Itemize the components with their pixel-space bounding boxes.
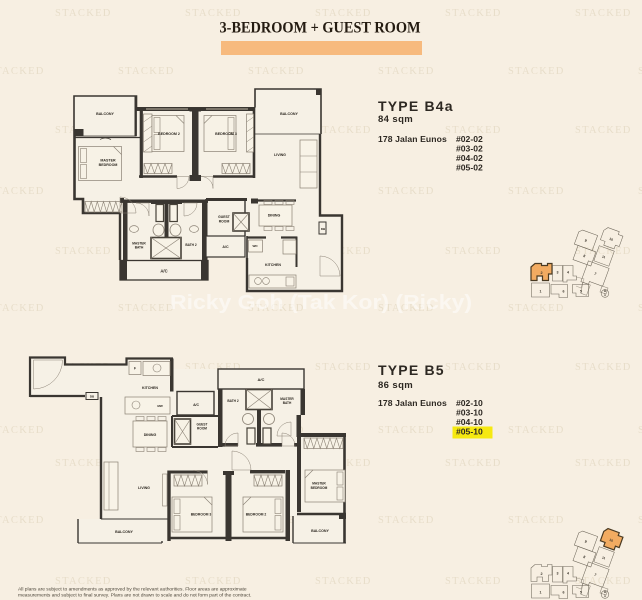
svg-text:STACKED: STACKED: [638, 425, 642, 436]
svg-text:#04-10: #04-10: [456, 417, 483, 427]
svg-text:BEDROOM 3: BEDROOM 3: [215, 132, 237, 136]
svg-text:STACKED: STACKED: [378, 425, 435, 436]
svg-text:TYPE B5: TYPE B5: [378, 362, 445, 378]
svg-text:#04-02: #04-02: [456, 153, 483, 163]
svg-text:BALCONY: BALCONY: [311, 529, 329, 533]
svg-text:ROOM: ROOM: [219, 220, 230, 224]
svg-text:STACKED: STACKED: [508, 186, 565, 197]
svg-text:#05-10: #05-10: [456, 427, 483, 437]
svg-text:STACKED: STACKED: [378, 515, 435, 526]
svg-text:STACKED: STACKED: [445, 458, 502, 469]
svg-text:2: 2: [540, 271, 542, 275]
svg-text:STACKED: STACKED: [508, 303, 565, 314]
svg-text:4: 4: [567, 271, 569, 275]
svg-text:F: F: [134, 367, 136, 371]
svg-text:BATH 2: BATH 2: [185, 243, 197, 247]
svg-text:A/C: A/C: [222, 245, 229, 249]
svg-text:STACKED: STACKED: [0, 186, 45, 197]
svg-text:BALCONY: BALCONY: [280, 112, 298, 116]
svg-text:178 Jalan Eunos: 178 Jalan Eunos: [378, 134, 447, 144]
svg-text:3: 3: [557, 572, 559, 576]
svg-text:STACKED: STACKED: [638, 66, 642, 77]
svg-text:DINING: DINING: [268, 214, 281, 218]
svg-text:STACKED: STACKED: [638, 303, 642, 314]
svg-text:STACKED: STACKED: [0, 66, 45, 77]
svg-text:STACKED: STACKED: [445, 362, 502, 373]
svg-text:1: 1: [604, 594, 606, 598]
svg-text:BATH: BATH: [283, 401, 292, 405]
svg-text:BEDROOM: BEDROOM: [311, 486, 328, 490]
svg-text:A/C: A/C: [160, 269, 167, 274]
svg-text:STACKED: STACKED: [0, 425, 45, 436]
svg-text:#03-10: #03-10: [456, 408, 483, 418]
svg-text:#02-02: #02-02: [456, 134, 483, 144]
svg-text:STACKED: STACKED: [315, 576, 372, 587]
svg-text:#05-02: #05-02: [456, 163, 483, 173]
svg-text:1: 1: [540, 591, 542, 595]
svg-text:measurements and subject to fi: measurements and subject to final survey…: [18, 593, 251, 599]
svg-text:STACKED: STACKED: [248, 66, 305, 77]
svg-text:STACKED: STACKED: [315, 8, 372, 19]
svg-text:STACKED: STACKED: [55, 246, 112, 257]
svg-text:STACKED: STACKED: [378, 66, 435, 77]
svg-text:STACKED: STACKED: [315, 125, 372, 136]
svg-text:WD: WD: [253, 244, 259, 248]
svg-text:1: 1: [540, 290, 542, 294]
svg-text:STACKED: STACKED: [638, 515, 642, 526]
svg-text:BATH: BATH: [135, 246, 144, 250]
svg-text:A/C: A/C: [193, 403, 199, 407]
svg-text:BALCONY: BALCONY: [115, 530, 133, 534]
svg-text:STACKED: STACKED: [0, 515, 45, 526]
svg-text:GUEST: GUEST: [218, 215, 231, 219]
svg-text:#02-10: #02-10: [456, 398, 483, 408]
svg-text:STACKED: STACKED: [118, 303, 175, 314]
svg-text:ROOM: ROOM: [197, 427, 207, 431]
svg-text:#03-02: #03-02: [456, 144, 483, 154]
svg-text:LIVING: LIVING: [274, 153, 286, 157]
svg-text:STACKED: STACKED: [378, 186, 435, 197]
svg-text:STACKED: STACKED: [445, 8, 502, 19]
svg-text:STACKED: STACKED: [575, 8, 632, 19]
svg-text:STACKED: STACKED: [445, 576, 502, 587]
svg-text:2: 2: [540, 572, 542, 576]
svg-text:MW: MW: [157, 404, 162, 408]
svg-text:BEDROOM 2: BEDROOM 2: [246, 513, 267, 517]
svg-text:1: 1: [604, 293, 606, 297]
svg-text:3: 3: [557, 271, 559, 275]
svg-text:STACKED: STACKED: [118, 66, 175, 77]
svg-text:178 Jalan Eunos: 178 Jalan Eunos: [378, 398, 447, 408]
svg-text:BEDROOM: BEDROOM: [99, 163, 118, 167]
svg-text:STACKED: STACKED: [55, 576, 112, 587]
svg-text:MASTER: MASTER: [312, 482, 326, 486]
svg-text:STACKED: STACKED: [575, 362, 632, 373]
svg-text:BEDROOM 3: BEDROOM 3: [191, 513, 212, 517]
svg-text:STACKED: STACKED: [575, 458, 632, 469]
svg-text:STACKED: STACKED: [185, 576, 242, 587]
svg-text:A/C: A/C: [258, 377, 265, 382]
svg-text:6: 6: [563, 591, 565, 595]
svg-text:STACKED: STACKED: [638, 186, 642, 197]
svg-text:All plans are subject to amend: All plans are subject to amendments as a…: [18, 587, 247, 593]
svg-text:STACKED: STACKED: [185, 8, 242, 19]
svg-text:STACKED: STACKED: [0, 303, 45, 314]
svg-text:STACKED: STACKED: [575, 125, 632, 136]
svg-text:BALCONY: BALCONY: [96, 112, 114, 116]
svg-text:6: 6: [563, 290, 565, 294]
svg-text:BEDROOM 2: BEDROOM 2: [158, 132, 180, 136]
svg-text:86 sqm: 86 sqm: [378, 380, 413, 391]
svg-text:STACKED: STACKED: [508, 66, 565, 77]
svg-text:3-BEDROOM + GUEST ROOM: 3-BEDROOM + GUEST ROOM: [220, 20, 421, 37]
svg-text:Ricky Goh (Tak Kor) (Ricky): Ricky Goh (Tak Kor) (Ricky): [170, 291, 472, 314]
svg-text:LIVING: LIVING: [138, 486, 150, 490]
svg-text:KITCHEN: KITCHEN: [142, 386, 158, 390]
svg-text:BATH 2: BATH 2: [227, 399, 239, 403]
svg-text:84 sqm: 84 sqm: [378, 114, 413, 125]
svg-text:4: 4: [567, 572, 569, 576]
svg-text:STACKED: STACKED: [55, 8, 112, 19]
svg-text:DINING: DINING: [144, 433, 157, 437]
svg-text:STACKED: STACKED: [508, 425, 565, 436]
svg-text:STACKED: STACKED: [508, 515, 565, 526]
svg-text:STACKED: STACKED: [445, 246, 502, 257]
svg-text:MASTER: MASTER: [100, 159, 116, 163]
svg-text:TYPE B4a: TYPE B4a: [378, 98, 454, 114]
svg-text:KITCHEN: KITCHEN: [265, 263, 281, 267]
svg-text:STACKED: STACKED: [315, 362, 372, 373]
